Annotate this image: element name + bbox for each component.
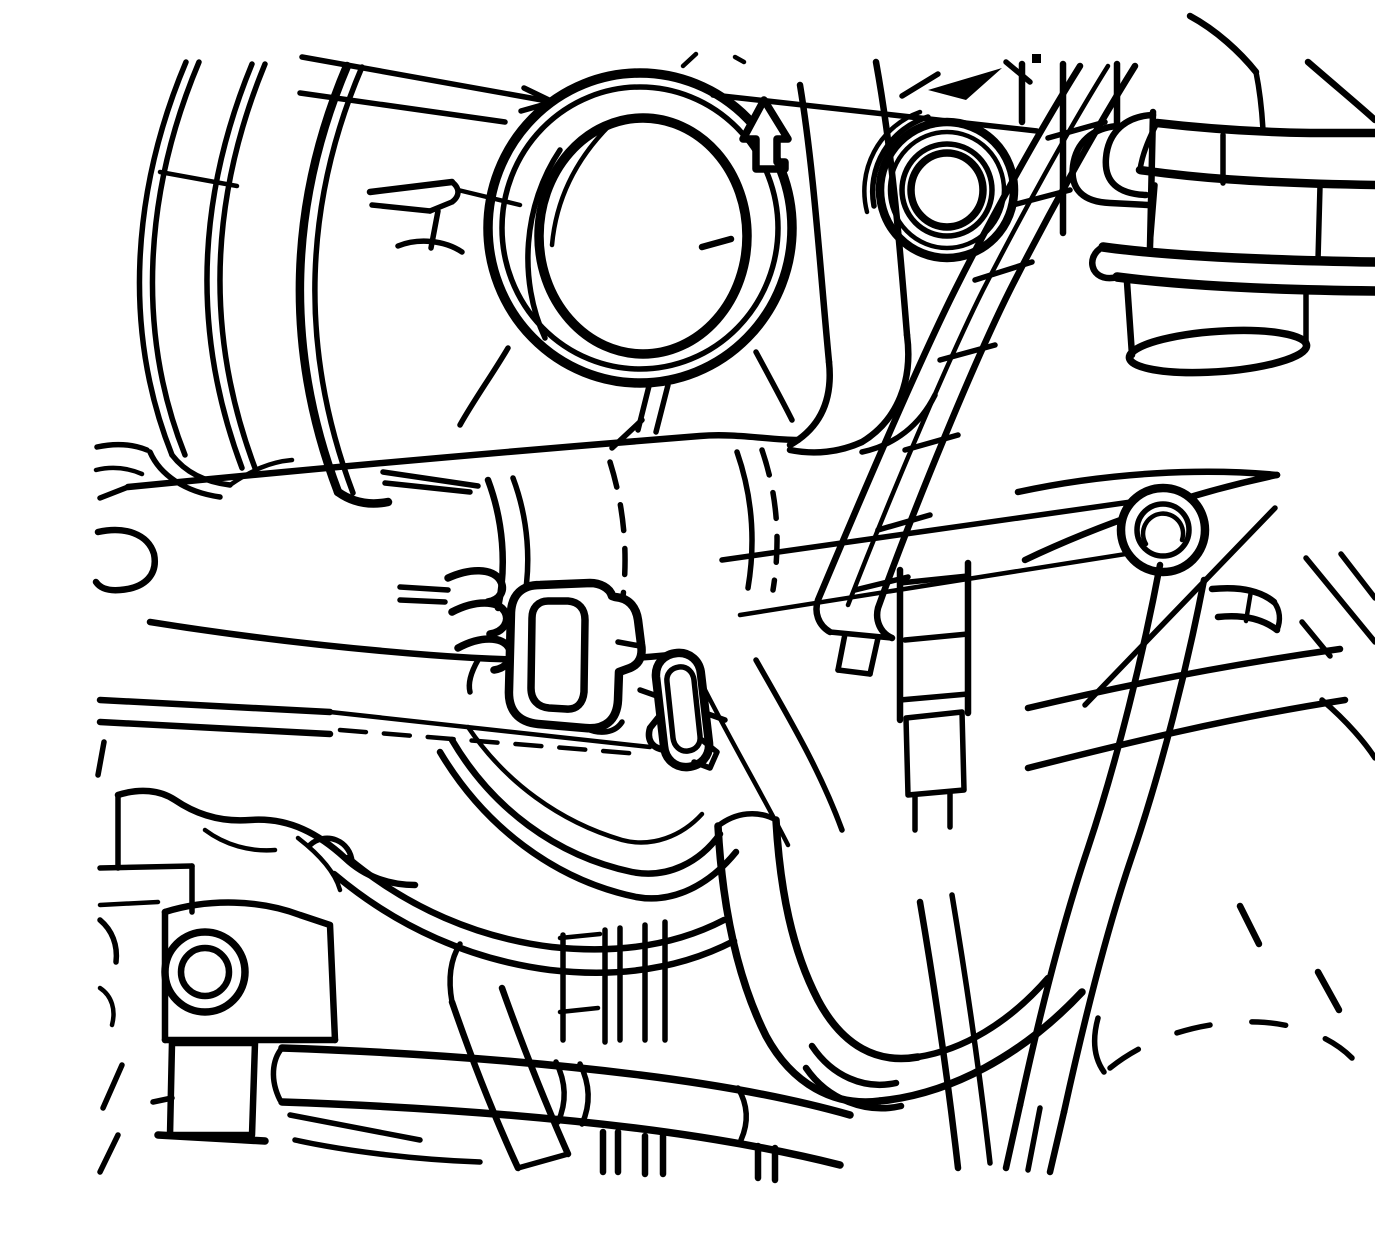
wire-loop	[452, 603, 507, 634]
engine-line-illustration: Engine compartment line illustration	[0, 0, 1375, 1239]
harness-wire	[400, 587, 448, 590]
bolt-head	[1121, 488, 1205, 572]
up-arrow-icon	[743, 100, 788, 169]
fork-tube	[1006, 565, 1204, 1172]
ribbed-disc	[96, 62, 520, 590]
right-hose-tangle	[722, 472, 1375, 1172]
top-structures	[1022, 64, 1153, 247]
harness-wire	[400, 600, 445, 602]
oval-bracket	[656, 653, 717, 768]
sensor-bracket-column	[700, 563, 968, 845]
hidden-edge-dashes	[1095, 906, 1352, 1072]
illustration-canvas: Engine compartment line illustration	[0, 0, 1375, 1239]
hose-nipple	[1212, 588, 1279, 630]
pointer-lines	[300, 54, 744, 122]
wire-loop	[448, 571, 502, 602]
